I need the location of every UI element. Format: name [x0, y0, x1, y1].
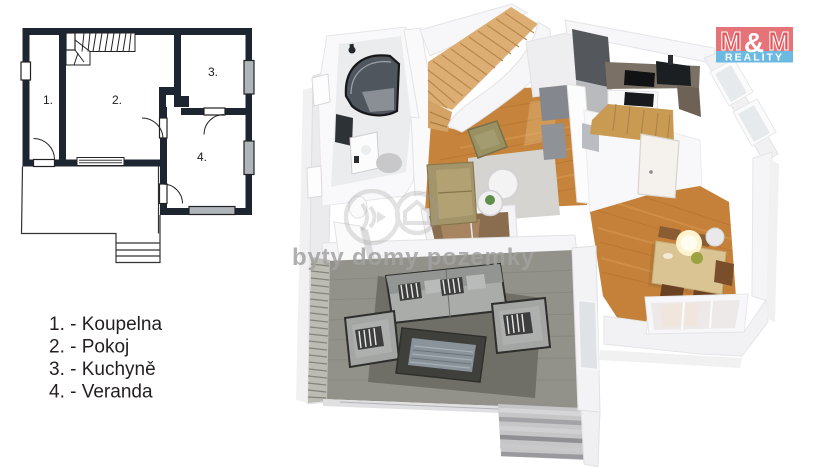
svg-text:4.: 4.	[197, 150, 207, 164]
svg-text:3. - Kuchyně: 3. - Kuchyně	[49, 359, 156, 380]
svg-text:byty domy pozemky: byty domy pozemky	[292, 244, 535, 271]
svg-text:M: M	[768, 26, 790, 56]
svg-text:2. - Pokoj: 2. - Pokoj	[49, 337, 129, 358]
svg-text:&: &	[744, 27, 764, 58]
svg-text:4. - Veranda: 4. - Veranda	[49, 382, 153, 403]
svg-text:M: M	[720, 26, 742, 56]
svg-text:1. - Koupelna: 1. - Koupelna	[49, 314, 162, 335]
svg-text:1.: 1.	[43, 93, 53, 107]
svg-text:3.: 3.	[208, 65, 218, 79]
svg-text:2.: 2.	[112, 93, 122, 107]
